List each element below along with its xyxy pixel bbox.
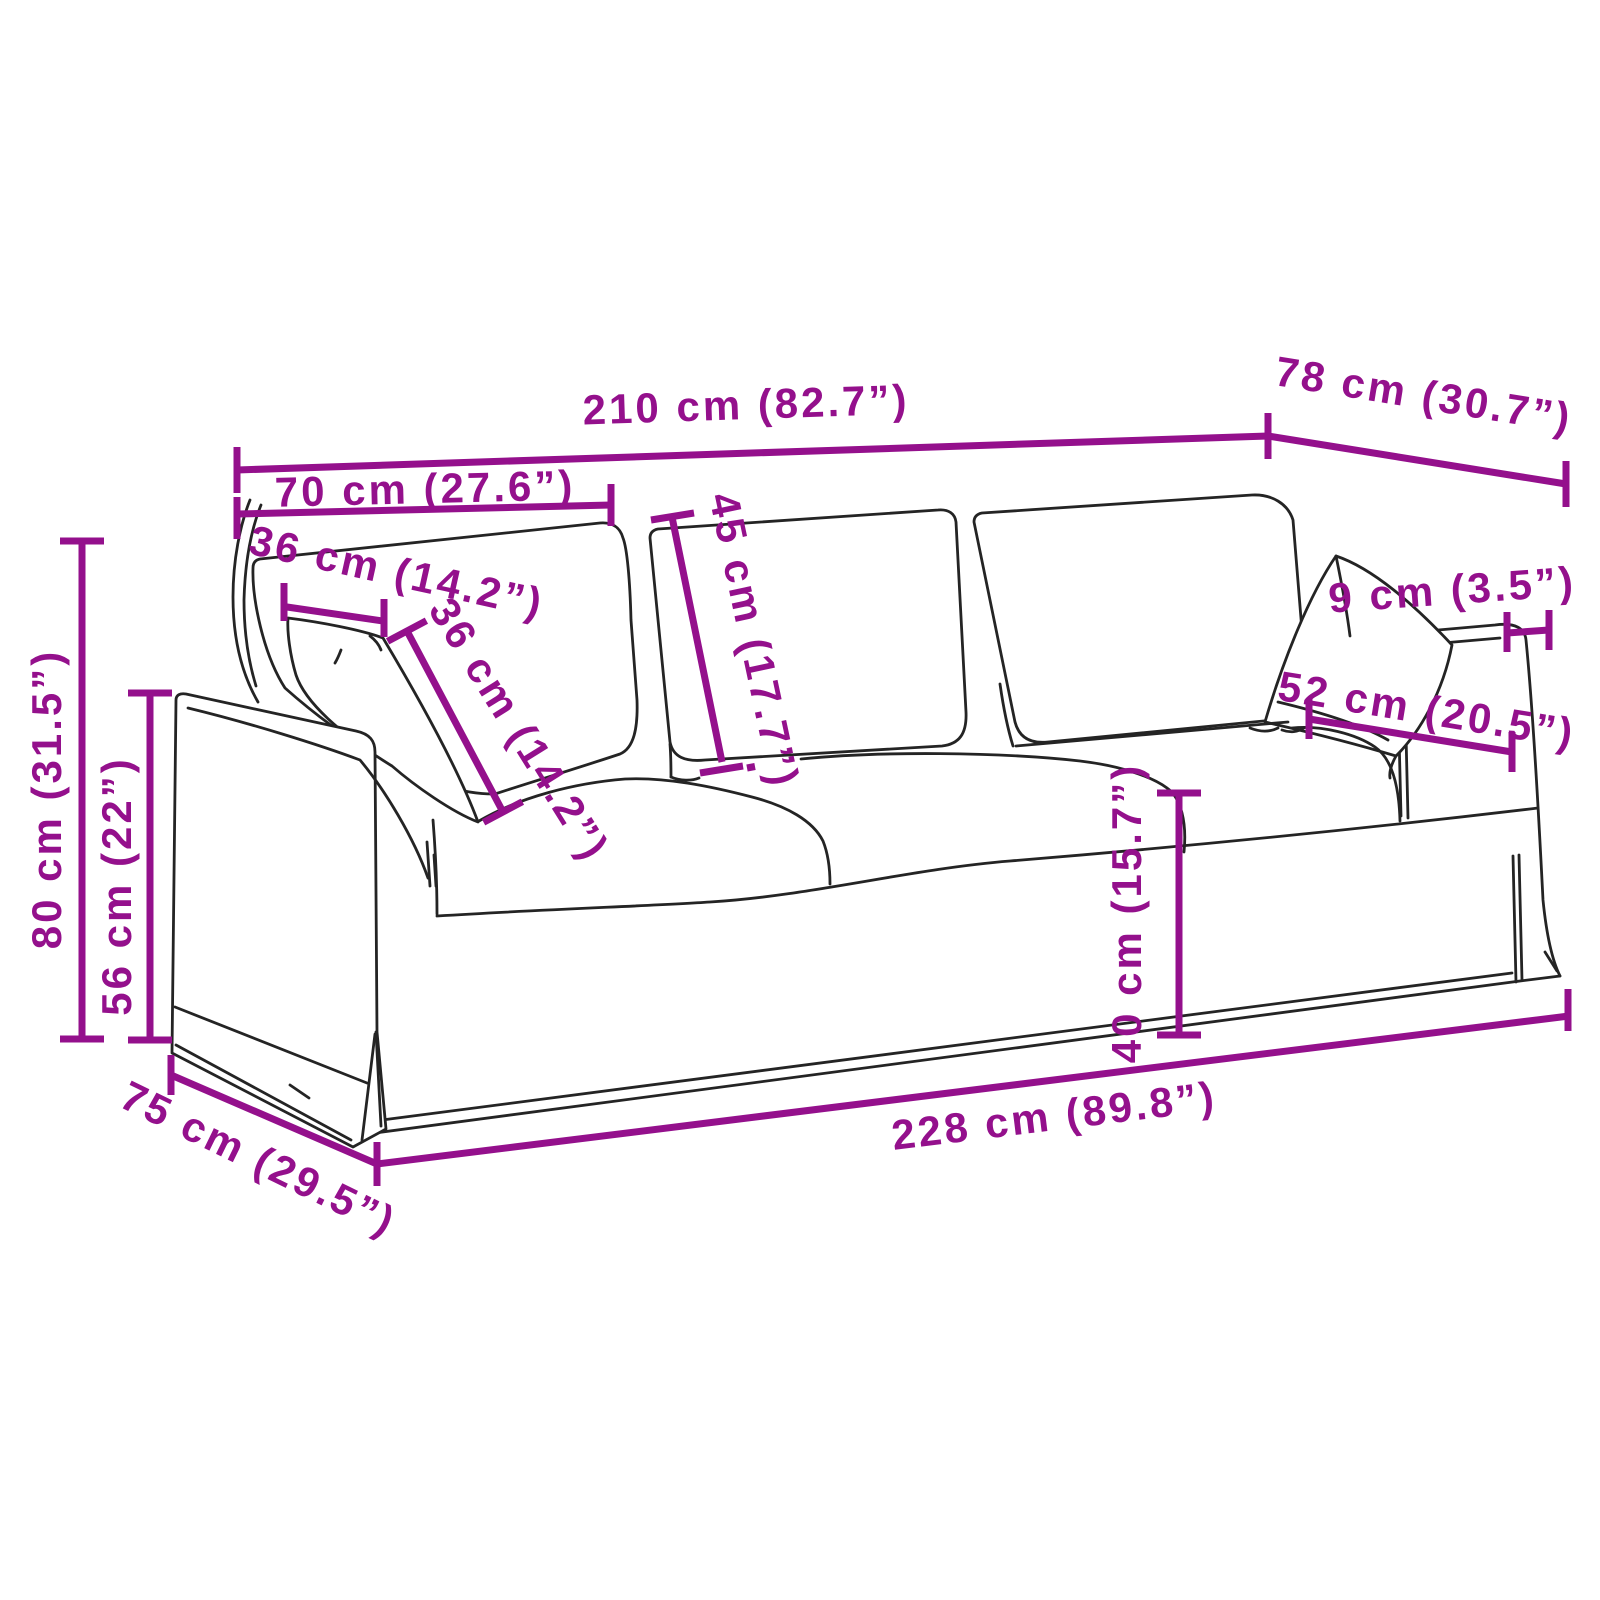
svg-text:56 cm (22”): 56 cm (22”) — [93, 756, 140, 1015]
svg-text:40 cm (15.7”): 40 cm (15.7”) — [1103, 763, 1150, 1063]
svg-text:70 cm (27.6”): 70 cm (27.6”) — [274, 461, 576, 515]
svg-text:80 cm (31.5”): 80 cm (31.5”) — [23, 649, 70, 949]
